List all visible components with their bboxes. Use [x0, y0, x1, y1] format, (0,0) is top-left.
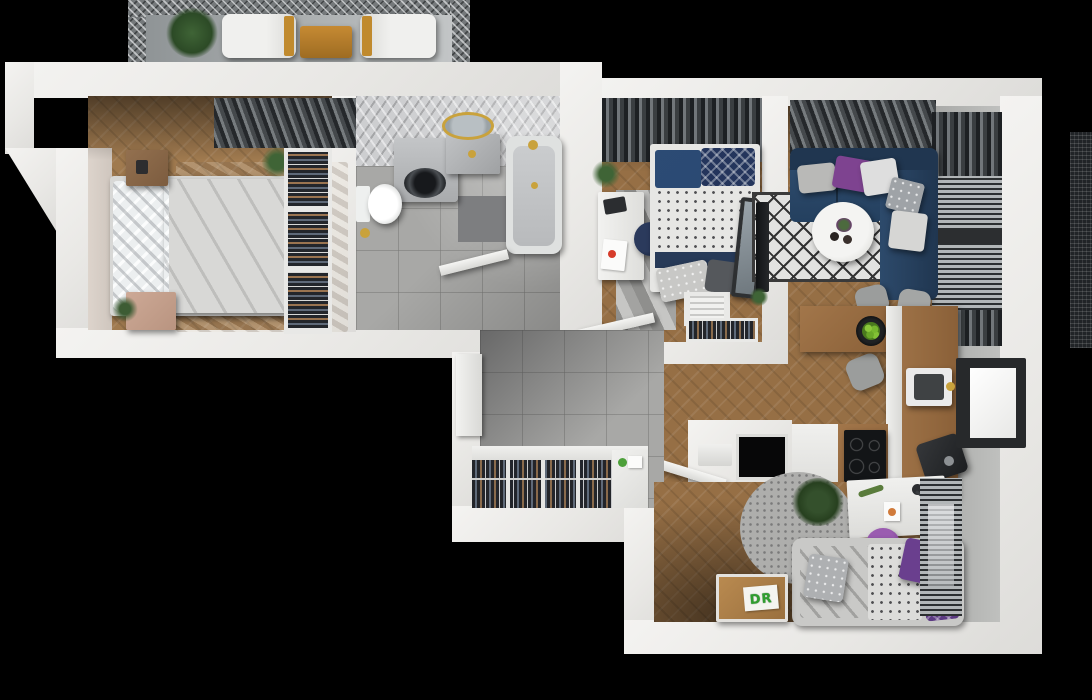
- balcony-potted-plant: [166, 8, 218, 58]
- kitchen-sink-basin: [914, 374, 944, 400]
- coffee-table-candle-1: [830, 232, 839, 241]
- hall-wardrobe-divider-3: [576, 460, 580, 508]
- master-wardrobe-rack-3: [288, 272, 328, 328]
- living-window-bar: [932, 228, 1002, 244]
- nightstand-top-radio: [136, 160, 148, 174]
- balcony-lounge-chair-1-headrest: [284, 16, 294, 56]
- hall-wardrobe-divider-1: [506, 460, 510, 508]
- small-bedroom-plant: [592, 160, 620, 188]
- hall-cabinet-item-box: [628, 456, 642, 468]
- balcony-railing-right: [450, 0, 470, 64]
- small-bed-navy-sheet: [655, 150, 701, 188]
- bathtub-drain-gold: [531, 182, 538, 189]
- top-wall-left: [5, 62, 582, 98]
- toy-chest-sticker: DR: [743, 585, 779, 612]
- nightstand-plant: [112, 296, 138, 322]
- coffee-table-flowers: [836, 218, 852, 232]
- kids-plant: [792, 478, 844, 526]
- sink-mirror-gold: [442, 112, 494, 140]
- desk-paper-logo: [608, 250, 616, 258]
- balcony-table: [300, 26, 352, 58]
- coffee-machine-dial: [944, 456, 954, 466]
- hallway-bottom-wall: [452, 506, 652, 542]
- sofa-pillow-white-2: [888, 210, 928, 252]
- bathroom-floor-mat: [458, 196, 506, 242]
- kids-bed-gray-pillow: [803, 553, 849, 603]
- bathtub-basin: [513, 146, 555, 246]
- cooktop-burners: [844, 430, 886, 482]
- kids-window-glass: [928, 504, 954, 586]
- left-wall-lower: [56, 148, 88, 358]
- left-wall-upper: [5, 62, 34, 154]
- apples-green: [862, 322, 880, 340]
- exterior-railing-strip: [1070, 132, 1092, 348]
- small-bed-diamond-pillow: [701, 148, 755, 186]
- hallway-cabinet-tall: [456, 354, 482, 436]
- living-room-top-curtains: [790, 100, 936, 154]
- entry-bench: [698, 444, 732, 466]
- kids-desk-photo-motif: [888, 508, 896, 516]
- kitchen-cabinet-faces: [886, 306, 902, 498]
- sink-tap-gold: [468, 150, 476, 158]
- kitchen-window-glass: [970, 368, 1016, 438]
- hall-wardrobe-divider-2: [541, 460, 545, 508]
- living-window-curtain-top: [932, 112, 1002, 176]
- toy-chest-label: DR: [749, 591, 773, 608]
- tv-screen: [756, 202, 769, 292]
- bathroom-small-bedroom-wall: [560, 62, 602, 362]
- hall-cabinet-item-green: [618, 458, 627, 467]
- floorplan-render: DR: [0, 0, 1092, 700]
- toilet-bin: [360, 228, 370, 238]
- small-bedroom-clothes-rack: [686, 318, 758, 342]
- kitchen-tap-gold: [946, 382, 955, 391]
- master-wardrobe-rack-2: [288, 212, 328, 266]
- coffee-table-candle-2: [843, 235, 852, 244]
- washing-machine-drum: [404, 168, 446, 198]
- master-wardrobe-rack-1: [288, 152, 328, 206]
- master-bedroom-wall-face: [88, 148, 112, 330]
- master-bed-duvet: [164, 179, 304, 313]
- sofa-pillow-gray: [797, 162, 838, 194]
- left-wall-corner: [5, 148, 58, 234]
- living-plant-small: [750, 288, 768, 306]
- balcony-lounge-chair-2-headrest: [362, 16, 372, 56]
- coffee-table: [812, 202, 874, 262]
- entrance-doorway-open: [736, 434, 788, 480]
- toilet-bowl: [368, 184, 402, 224]
- bathtub-faucet-gold: [528, 140, 538, 150]
